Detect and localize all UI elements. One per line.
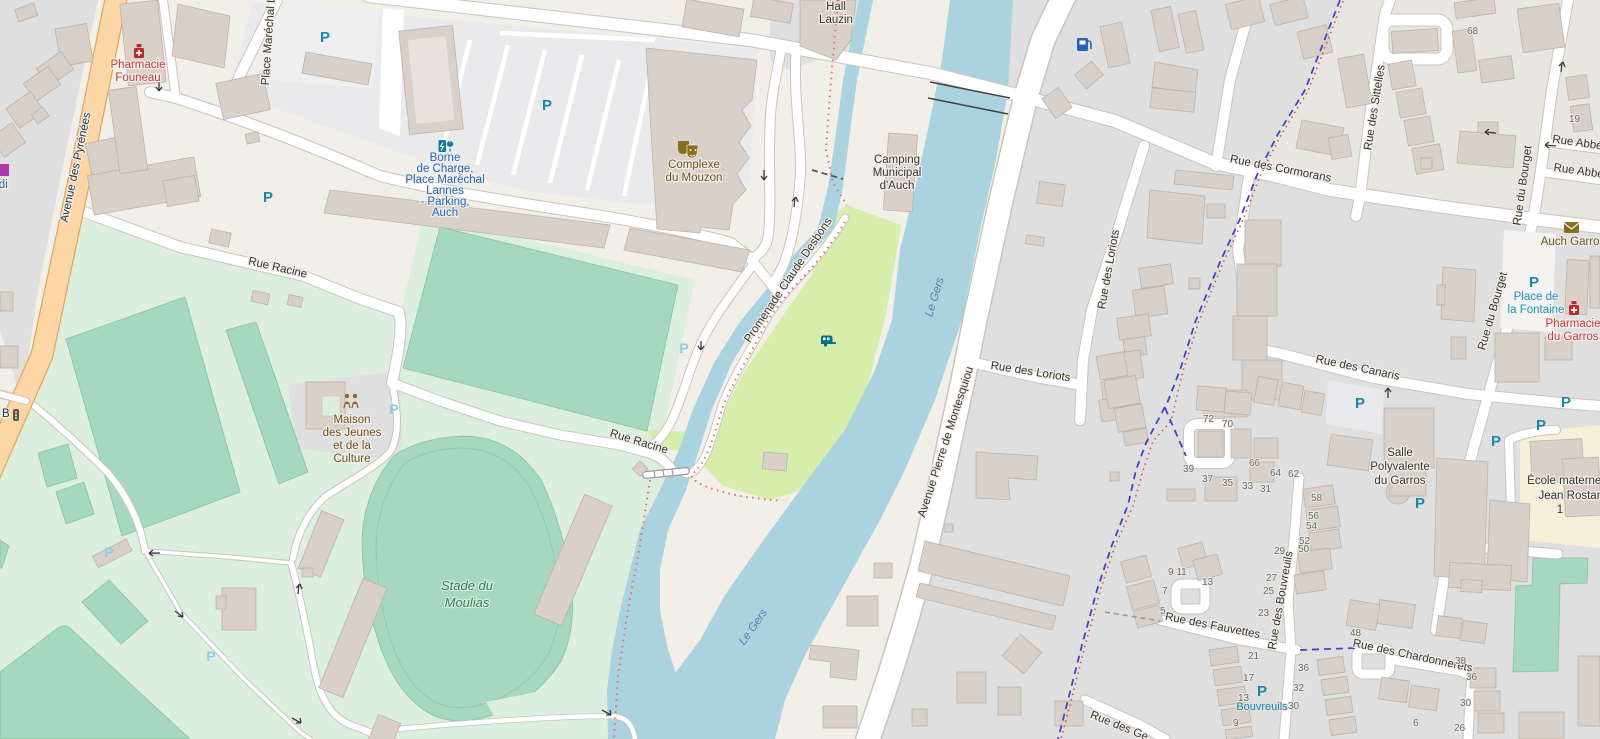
svg-text:École maternelle: École maternelle [1527,474,1600,487]
svg-text:Auch Garros: Auch Garros [1541,236,1600,248]
svg-text:Complexe: Complexe [668,159,720,171]
svg-text:19: 19 [1569,114,1581,125]
svg-text:17: 17 [1243,673,1255,684]
svg-text:Place de: Place de [1514,291,1559,303]
svg-text:Municipal: Municipal [873,167,922,179]
svg-text:54: 54 [1306,521,1318,532]
svg-text:50: 50 [1298,544,1310,555]
svg-text:29: 29 [1274,546,1286,557]
svg-text:d'Auch: d'Auch [880,180,915,192]
svg-text:des Jeunes: des Jeunes [323,427,382,439]
svg-text:Moulias: Moulias [445,595,490,610]
svg-text:P: P [206,648,215,664]
svg-text:P: P [389,401,398,417]
svg-text:Founeau: Founeau [115,72,160,84]
svg-text:39: 39 [1183,464,1195,475]
svg-text:P: P [1529,274,1539,291]
svg-text:Pharmacie: Pharmacie [111,59,166,71]
svg-text:62: 62 [1288,469,1300,480]
svg-text:38: 38 [1455,656,1467,667]
svg-text:Auch: Auch [432,207,458,219]
svg-text:Pharmacie: Pharmacie [1546,318,1600,330]
svg-text:du Garros: du Garros [1547,331,1598,343]
svg-text:33: 33 [1242,481,1254,492]
svg-text:Culture: Culture [333,453,370,465]
svg-text:la Fontaine: la Fontaine [1508,304,1565,316]
svg-text:30: 30 [1460,698,1472,709]
svg-text:27: 27 [1266,573,1278,584]
svg-text:36: 36 [1466,672,1478,683]
svg-text:30: 30 [1288,701,1300,712]
svg-text:P: P [104,544,113,560]
svg-text:64: 64 [1270,468,1282,479]
svg-text:Polyvalente: Polyvalente [1370,461,1429,473]
svg-text:72: 72 [1203,414,1215,425]
svg-text:Salle: Salle [1387,447,1413,459]
svg-text:21: 21 [1248,651,1260,662]
svg-text:Stade du: Stade du [441,578,493,593]
svg-text:13: 13 [1238,693,1250,704]
svg-text:P: P [1415,495,1425,512]
svg-text:du Mouzon: du Mouzon [666,172,723,184]
svg-text:P: P [679,340,688,356]
svg-text:Camping: Camping [874,154,920,166]
svg-text:35: 35 [1222,478,1234,489]
svg-text:13: 13 [1202,577,1214,588]
svg-text:37: 37 [1202,474,1214,485]
svg-text:P: P [542,97,552,114]
svg-text:36: 36 [1298,663,1310,674]
svg-text:P: P [1536,417,1546,434]
svg-text:58: 58 [1311,493,1323,504]
svg-text:68: 68 [1467,26,1479,37]
svg-text:9: 9 [1233,718,1239,729]
svg-text:32: 32 [1293,683,1305,694]
svg-text:Maison: Maison [333,414,370,426]
svg-text:23: 23 [1258,608,1270,619]
svg-text:1: 1 [1557,504,1563,516]
svg-text:P: P [1257,683,1267,700]
svg-text:25: 25 [1263,586,1275,597]
svg-text:31: 31 [1260,484,1272,495]
svg-text:P: P [320,29,330,46]
svg-text:6: 6 [1413,718,1419,729]
svg-text:P: P [263,189,273,206]
svg-text:5: 5 [1160,606,1166,617]
svg-text:P: P [1355,395,1365,412]
svg-text:9 11: 9 11 [1168,567,1187,578]
svg-text:du Garros: du Garros [1374,475,1425,487]
svg-text:66: 66 [1249,458,1261,469]
svg-text:P: P [1491,433,1501,450]
svg-text:et de la: et de la [333,440,371,452]
svg-text:B: B [2,408,10,420]
svg-text:70: 70 [1222,419,1234,430]
svg-text:ldi: ldi [0,179,8,191]
svg-text:26: 26 [1454,723,1466,734]
svg-text:P: P [1561,394,1571,411]
svg-text:Lauzin: Lauzin [819,14,853,26]
svg-text:Hall: Hall [826,1,846,13]
svg-text:48: 48 [1350,628,1362,639]
svg-text:Jean Rostand: Jean Rostand [1539,490,1600,502]
svg-text:7: 7 [1162,586,1168,597]
